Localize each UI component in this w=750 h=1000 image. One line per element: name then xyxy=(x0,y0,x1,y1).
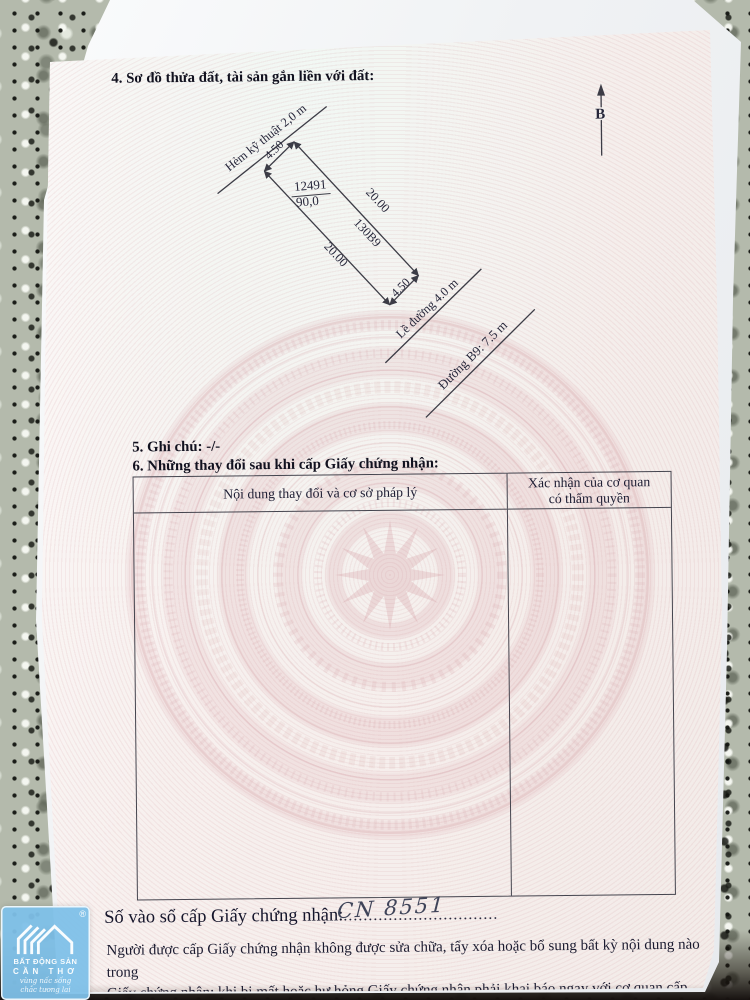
column-header-change-content: Nội dung thay đổi và cơ sở pháp lý xyxy=(134,474,508,513)
logo-brand-name: BẤT ĐỘNG SẢN xyxy=(1,957,90,966)
logo-brand-city: CẦN THƠ xyxy=(1,967,90,976)
right-length-dim: 20.00 xyxy=(363,185,392,215)
road-line xyxy=(425,309,536,417)
registered-trademark-icon: ® xyxy=(79,909,86,919)
registry-label: Số vào sổ cấp Giấy chứng nhận: xyxy=(104,905,343,928)
photo-of-land-certificate: 4. Sơ đồ thửa đất, tài sản gắn liền với … xyxy=(0,0,750,1000)
left-length-dim: 20.00 xyxy=(321,239,350,269)
north-label: B xyxy=(595,107,605,123)
page-content: 4. Sơ đồ thửa đất, tài sản gắn liền với … xyxy=(0,0,750,1000)
realestate-watermark-logo: ® BẤT ĐỘNG SẢN CẦN THƠ vùng nấc sống chắ… xyxy=(1,906,90,1000)
road-label: Đường B9: 7.5 m xyxy=(435,317,510,392)
cell-authority-empty xyxy=(508,508,675,896)
cell-change-content-empty xyxy=(134,510,512,900)
parcel-area: 90,0 xyxy=(295,193,319,210)
house-icon xyxy=(12,914,80,956)
plot-diagram: B Hẻm kỹ thuật 2,0 m 4.50 12491 90,0 20.… xyxy=(185,77,629,432)
changes-table: Nội dung thay đổi và cơ sở pháp lý Xác n… xyxy=(133,471,676,901)
footer-line-1: Người được cấp Giấy chứng nhận không đượ… xyxy=(106,934,720,983)
alley-label: Hẻm kỹ thuật 2,0 m xyxy=(222,101,309,174)
logo-slogan-line1: vùng nấc sống xyxy=(1,977,90,985)
column-header-authority-confirmation: Xác nhận của cơ quan có thẩm quyền xyxy=(508,472,671,509)
parcel-number: 12491 xyxy=(293,176,327,194)
section5-heading: 5. Ghi chú: -/- xyxy=(132,439,220,457)
table-header-row: Nội dung thay đổi và cơ sở pháp lý Xác n… xyxy=(134,472,671,514)
section6-heading: 6. Những thay đổi sau khi cấp Giấy chứng… xyxy=(132,455,439,475)
logo-slogan-line2: chắc tương lai xyxy=(1,986,90,994)
certificate-page: 4. Sơ đồ thửa đất, tài sản gắn liền với … xyxy=(0,0,750,1000)
table-body-row xyxy=(134,508,675,900)
back-width-dim: 4.50 xyxy=(388,275,413,300)
